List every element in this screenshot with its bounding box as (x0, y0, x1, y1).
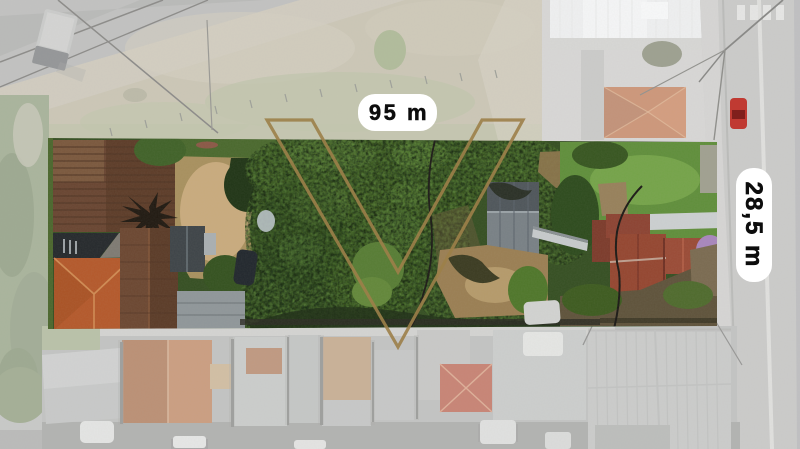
svg-text:95 m: 95 m (369, 100, 429, 125)
svg-text:28,5 m: 28,5 m (740, 182, 767, 269)
